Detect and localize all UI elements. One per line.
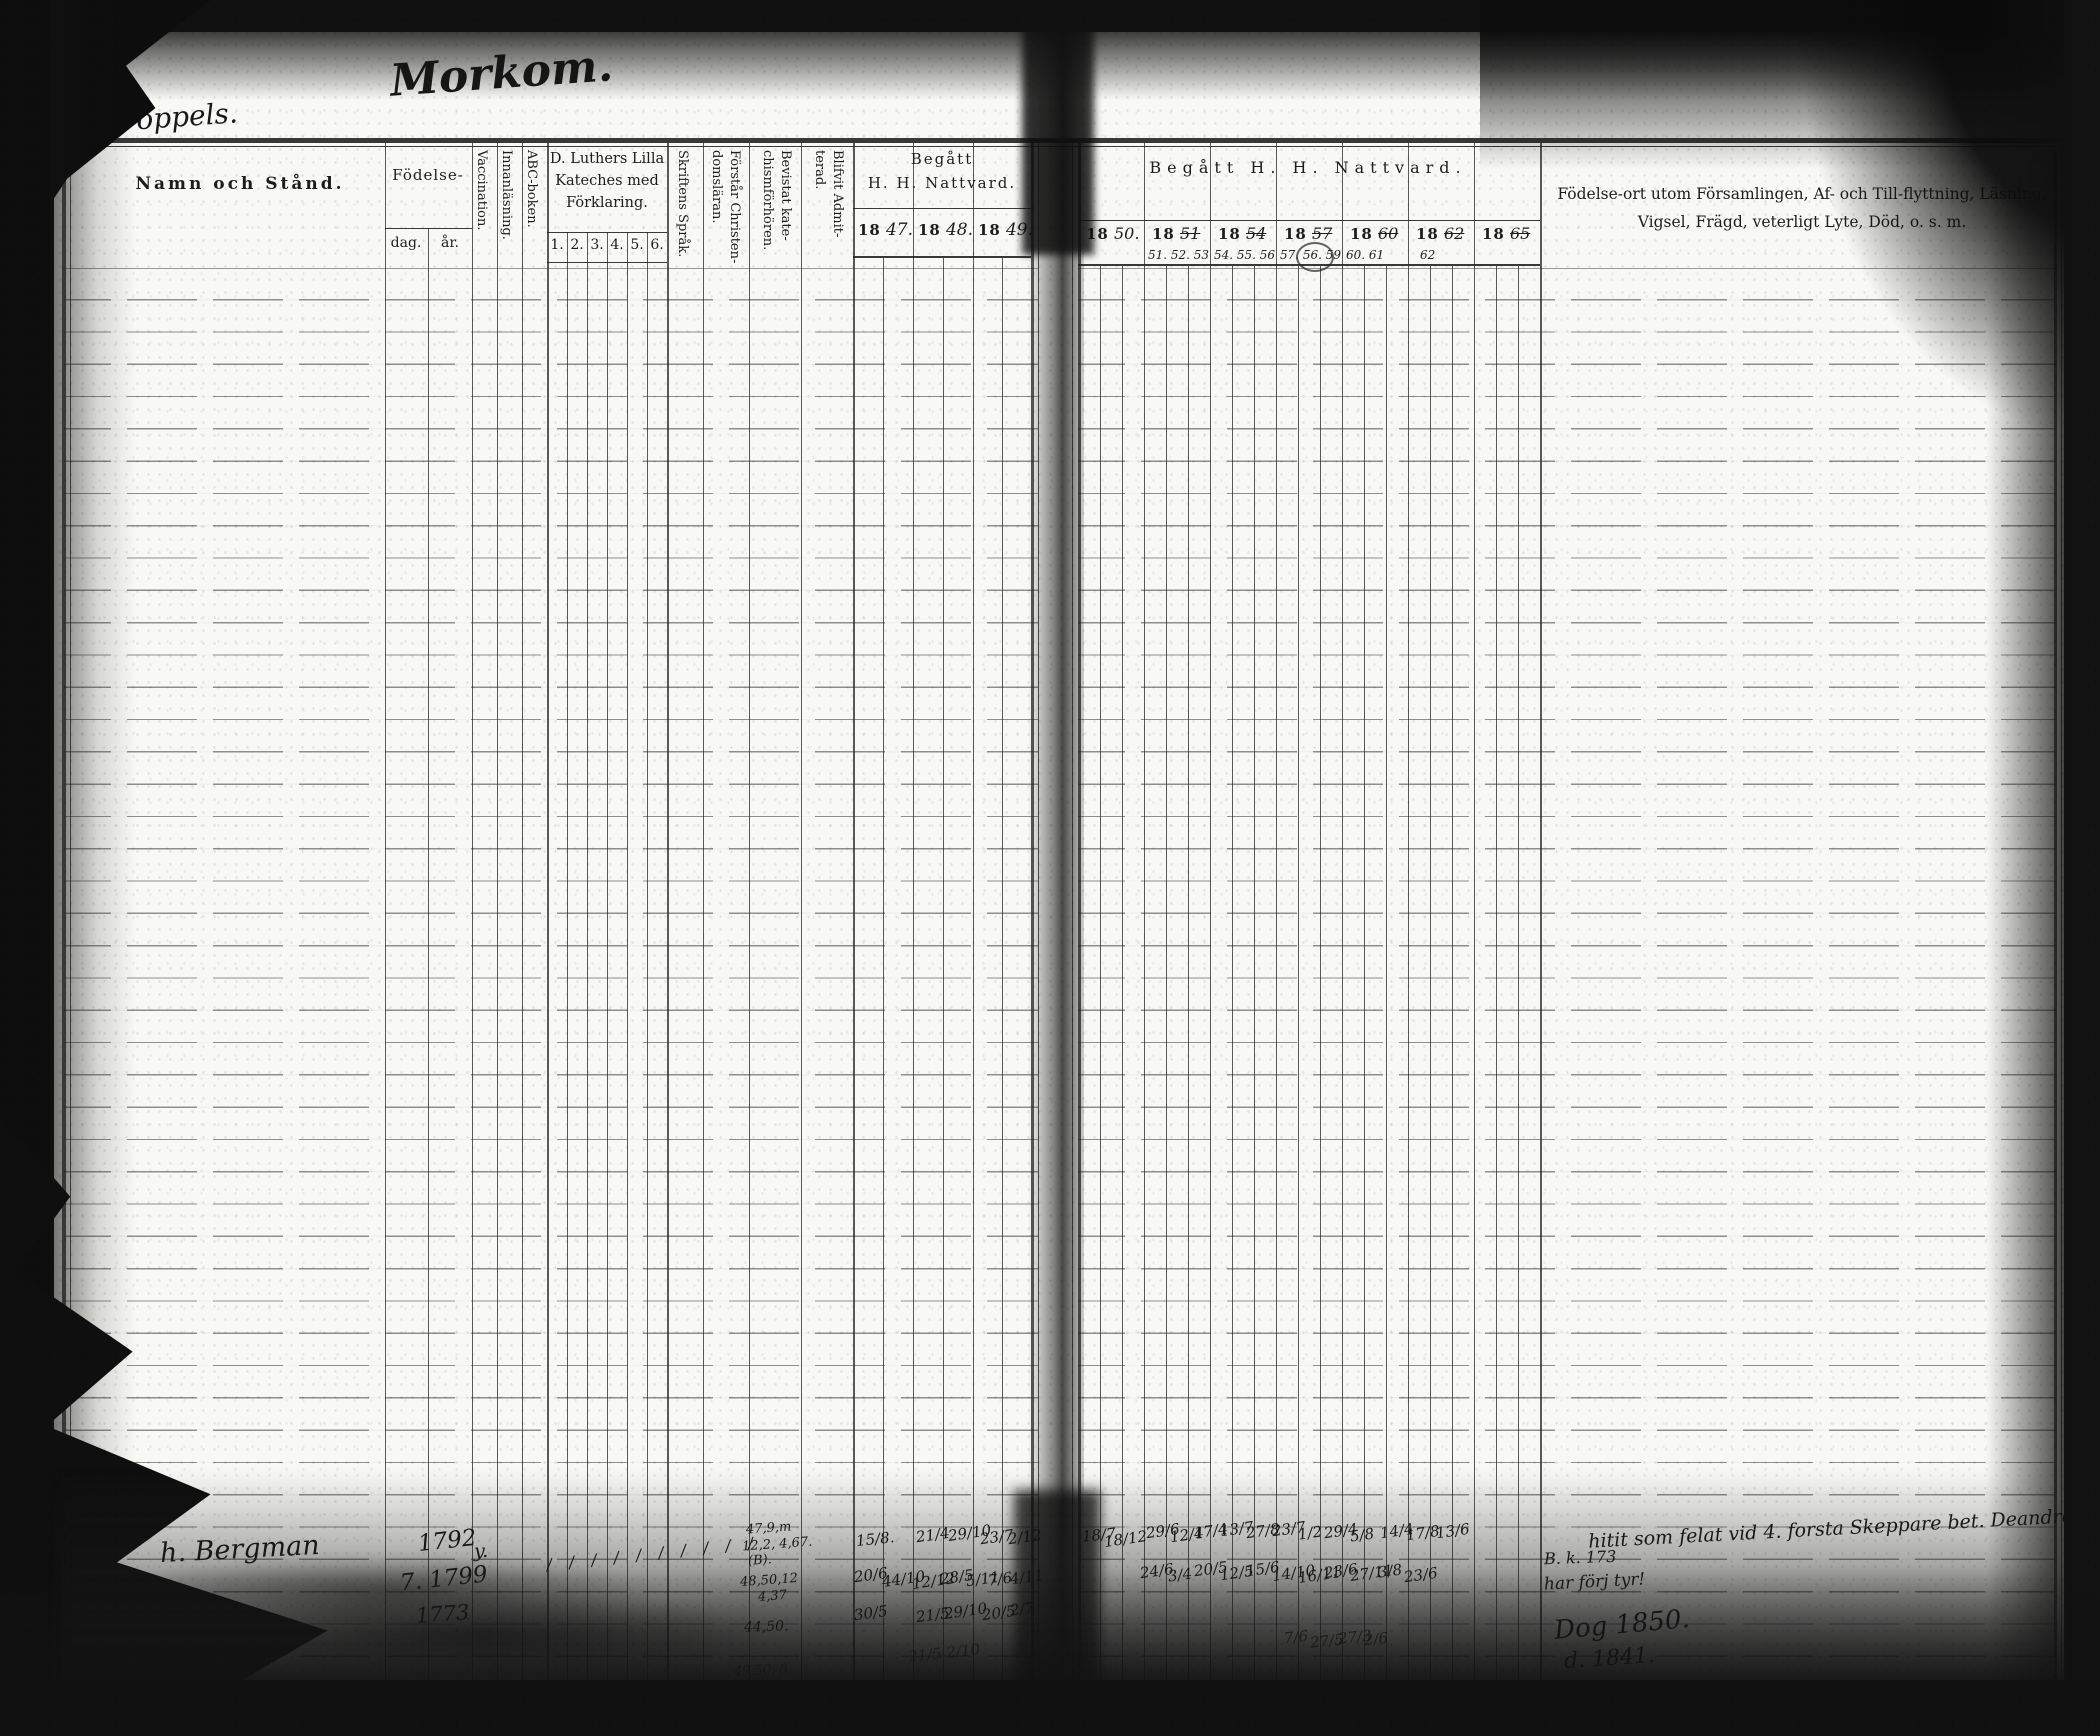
table-vertical-rule bbox=[913, 143, 914, 1692]
table-vertical-rule bbox=[1408, 143, 1409, 1688]
table-vertical-rule bbox=[1078, 142, 1081, 1700]
table-vertical-rule bbox=[1496, 266, 1497, 1688]
name-column-header: Namn och Stånd. bbox=[135, 176, 344, 194]
scripture-column-header: Skriftens Språk. bbox=[676, 150, 689, 272]
table-vertical-rule bbox=[801, 143, 802, 1692]
handwriting-mark: 5/8 bbox=[1349, 1526, 1375, 1544]
table-vertical-rule bbox=[703, 143, 704, 1692]
handwriting-mark: 1/2 bbox=[1297, 1524, 1323, 1542]
abc-book-column-header: ABC-boken. bbox=[525, 150, 538, 272]
table-vertical-rule bbox=[1100, 266, 1101, 1688]
ruled-rows-right-page bbox=[1078, 268, 2056, 1688]
year-list-1862: 62 bbox=[1420, 248, 1435, 262]
table-horizontal-rule bbox=[853, 256, 1031, 258]
table-vertical-rule bbox=[1320, 266, 1321, 1688]
understands-column-header-line2: domsläran. bbox=[710, 150, 723, 272]
table-vertical-rule bbox=[607, 232, 608, 1692]
catechism-number-4: 4. bbox=[610, 238, 623, 253]
table-vertical-rule bbox=[497, 143, 498, 1692]
scanned-ledger-page: Namn och Stånd. Födelse- dag. år. Vaccin… bbox=[0, 0, 2100, 1736]
communion-header-line2: H. H. Nattvard. bbox=[868, 176, 1016, 192]
year-header-1849: 18 49. bbox=[978, 222, 1033, 240]
year-header-1857: 18 57 bbox=[1284, 226, 1332, 243]
table-vertical-rule bbox=[385, 143, 386, 1692]
notes-column-header-line2: Vigsel, Frägd, veterligt Lyte, Död, o. s… bbox=[1638, 214, 1967, 230]
table-vertical-rule bbox=[749, 143, 750, 1692]
handwriting-mark: 48,50,12 bbox=[740, 1572, 799, 1589]
table-vertical-rule bbox=[1002, 258, 1003, 1692]
table-vertical-rule bbox=[1031, 140, 1034, 1700]
handwriting-mark: 2/7 bbox=[1009, 1600, 1035, 1618]
table-vertical-rule bbox=[1540, 143, 1542, 1688]
table-vertical-rule bbox=[1144, 143, 1145, 1688]
handwriting-mark: 7/6 bbox=[1283, 1629, 1309, 1646]
communion-header-right: Begått H. H. Nattvard. bbox=[1149, 160, 1466, 177]
table-vertical-rule bbox=[1518, 266, 1519, 1688]
handwriting-mark: 4,37 bbox=[758, 1589, 788, 1604]
table-vertical-rule bbox=[587, 232, 588, 1692]
year-list-1854: 54. 55. 56 bbox=[1214, 248, 1275, 262]
catechism-header-line3: Förklaring. bbox=[566, 196, 648, 211]
table-horizontal-rule bbox=[1078, 220, 1540, 221]
admitted-column-header-line1: Blifvit Admit- bbox=[831, 150, 844, 272]
table-horizontal-rule bbox=[1078, 268, 2058, 269]
table-vertical-rule bbox=[567, 232, 568, 1692]
handwriting-mark: y. bbox=[474, 1542, 488, 1561]
catechism-number-1: 1. bbox=[550, 238, 563, 253]
table-vertical-rule bbox=[883, 258, 884, 1692]
table-vertical-rule bbox=[667, 143, 669, 1692]
catechism-number-6: 6. bbox=[650, 238, 663, 253]
handwriting-mark: 47,9,m bbox=[746, 1520, 792, 1536]
year-list-1860: 60. 61 bbox=[1346, 248, 1384, 262]
year-header-1851: 18 51 bbox=[1152, 226, 1200, 243]
table-vertical-rule bbox=[62, 136, 66, 1700]
attended-column-header-line1: Bevistat kate- bbox=[779, 150, 792, 272]
table-vertical-rule bbox=[1364, 266, 1365, 1688]
table-vertical-rule bbox=[1276, 143, 1277, 1688]
table-vertical-rule bbox=[522, 143, 523, 1692]
handwriting-mark: 2/6 bbox=[1363, 1631, 1389, 1648]
year-header-1862: 18 62 bbox=[1416, 226, 1464, 243]
table-vertical-rule bbox=[1122, 266, 1123, 1688]
table-vertical-rule bbox=[1210, 143, 1211, 1688]
table-vertical-rule bbox=[1232, 266, 1233, 1688]
table-vertical-rule bbox=[973, 143, 974, 1692]
year-header-1847: 18 47. bbox=[858, 222, 913, 240]
admitted-column-header-line2: terad. bbox=[813, 150, 826, 272]
handwriting-mark: 30/5 bbox=[853, 1604, 888, 1624]
vaccination-column-header: Vaccination. bbox=[475, 150, 488, 272]
table-vertical-rule bbox=[1386, 266, 1387, 1688]
handwriting-mark: 15/8. bbox=[855, 1530, 895, 1549]
table-vertical-rule bbox=[1342, 143, 1343, 1688]
year-header-1865: 18 65 bbox=[1482, 226, 1530, 243]
understands-column-header-line1: Förstår Christen- bbox=[728, 150, 741, 272]
table-vertical-rule bbox=[853, 143, 855, 1692]
notes-column-header-line1: Födelse-ort utom Församlingen, Af- och T… bbox=[1557, 186, 2046, 202]
table-vertical-rule bbox=[2061, 150, 2062, 1700]
page-number-script: 268. bbox=[43, 21, 112, 57]
year-header-1860: 18 60 bbox=[1350, 226, 1398, 243]
table-vertical-rule bbox=[1038, 140, 1039, 1700]
catechism-number-5: 5. bbox=[630, 238, 643, 253]
handwriting-mark: 2/12 bbox=[1007, 1528, 1042, 1548]
handwriting-mark: 21/4 bbox=[915, 1526, 950, 1546]
table-vertical-rule bbox=[647, 232, 648, 1692]
table-horizontal-rule bbox=[62, 268, 1038, 269]
table-horizontal-rule bbox=[385, 228, 472, 229]
entry-name-script: h. Bergman bbox=[159, 1532, 320, 1567]
table-vertical-rule bbox=[1166, 266, 1167, 1688]
handwriting-mark: 13/6 bbox=[1435, 1522, 1470, 1542]
handwriting-mark: 3/8 bbox=[1377, 1562, 1403, 1580]
hand-circle-mark bbox=[1296, 242, 1334, 272]
table-vertical-rule bbox=[943, 258, 944, 1692]
year-list-1851: 51. 52. 53 bbox=[1148, 248, 1209, 262]
table-vertical-rule bbox=[1452, 266, 1453, 1688]
table-horizontal-rule bbox=[58, 138, 2068, 143]
note-script-line2: B. k. 173 bbox=[1544, 1549, 1617, 1568]
table-vertical-rule bbox=[1188, 266, 1189, 1688]
table-vertical-rule bbox=[627, 232, 628, 1692]
table-vertical-rule bbox=[2054, 150, 2057, 1700]
table-vertical-rule bbox=[428, 228, 429, 1692]
handwriting-mark: 1792 bbox=[417, 1527, 478, 1556]
birth-day-subheader: dag. bbox=[391, 236, 422, 251]
table-vertical-rule bbox=[1254, 266, 1255, 1688]
year-header-1848: 18 48. bbox=[918, 222, 973, 240]
table-vertical-rule bbox=[1298, 266, 1299, 1688]
handwriting-mark: (B). bbox=[748, 1553, 773, 1568]
birth-year-subheader: år. bbox=[441, 236, 459, 251]
catechism-header-line2: Kateches med bbox=[555, 174, 659, 189]
handwriting-mark: 23/6 bbox=[1403, 1566, 1438, 1586]
table-horizontal-rule bbox=[547, 262, 667, 263]
table-vertical-rule bbox=[472, 143, 473, 1692]
year-header-1854: 18 54 bbox=[1218, 226, 1266, 243]
table-vertical-rule bbox=[1072, 142, 1073, 1700]
handwriting-mark: 4/11 bbox=[1009, 1568, 1044, 1588]
handwriting-mark: 44,50. bbox=[744, 1619, 789, 1635]
reading-column-header: Innanläsning. bbox=[500, 150, 513, 272]
table-vertical-rule bbox=[1430, 266, 1431, 1688]
catechism-number-3: 3. bbox=[590, 238, 603, 253]
communion-header-line1: Begått bbox=[911, 152, 974, 168]
ruled-rows-left-page bbox=[64, 268, 1038, 1692]
catechism-number-2: 2. bbox=[570, 238, 583, 253]
table-vertical-rule bbox=[70, 136, 71, 1700]
handwriting-mark: 1773 bbox=[415, 1602, 470, 1627]
catechism-header-line1: D. Luthers Lilla bbox=[550, 152, 664, 167]
handwriting-mark: 3/4 bbox=[1167, 1566, 1193, 1584]
table-horizontal-rule bbox=[853, 208, 1031, 209]
handwriting-mark: 49,50, 8. bbox=[734, 1663, 792, 1678]
table-horizontal-rule bbox=[58, 146, 2068, 147]
birth-column-header: Födelse- bbox=[392, 168, 464, 184]
year-header-1850: 18 50. bbox=[1086, 226, 1139, 243]
table-vertical-rule bbox=[547, 143, 549, 1692]
attended-column-header-line2: chismförhören. bbox=[761, 150, 774, 272]
table-horizontal-rule bbox=[547, 232, 667, 233]
table-vertical-rule bbox=[1474, 143, 1475, 1688]
